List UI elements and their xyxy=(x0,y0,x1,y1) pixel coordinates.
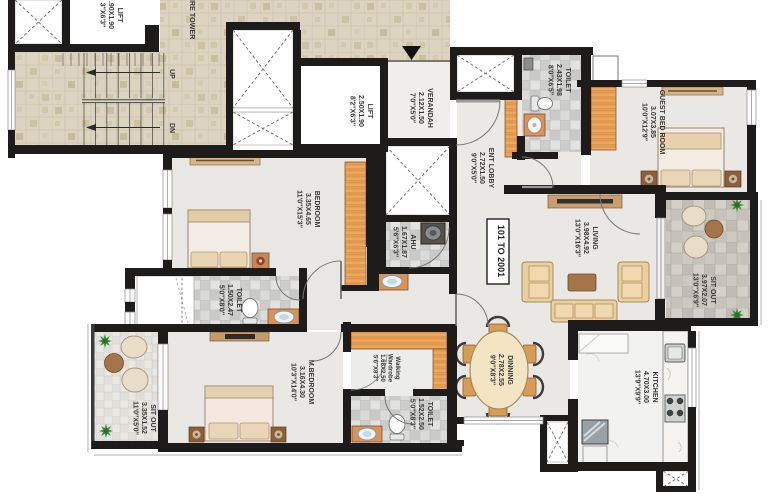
svg-text:2.78X2.55: 2.78X2.55 xyxy=(497,354,504,386)
svg-text:5'0″X8'0″: 5'0″X8'0″ xyxy=(217,285,224,316)
svg-text:5'0″X8'3″: 5'0″X8'3″ xyxy=(408,399,415,430)
svg-text:2.43X1.98: 2.43X1.98 xyxy=(555,64,562,96)
svg-text:13'0″X16'3″: 13'0″X16'3″ xyxy=(573,219,580,258)
svg-text:1.68X2.50: 1.68X2.50 xyxy=(379,354,386,382)
svg-text:3.35X4.65: 3.35X4.65 xyxy=(304,193,311,225)
svg-text:5'6″X6'3″: 5'6″X6'3″ xyxy=(391,227,398,258)
svg-text:3.97X2.07: 3.97X2.07 xyxy=(700,274,707,306)
svg-text:7'0″X5'0″: 7'0″X5'0″ xyxy=(408,93,415,124)
svg-text:3″X6'3″: 3″X6'3″ xyxy=(98,3,105,28)
svg-text:LIVING: LIVING xyxy=(591,226,598,250)
svg-text:11'0″X15'3″: 11'0″X15'3″ xyxy=(295,190,302,228)
svg-text:BEDROOM: BEDROOM xyxy=(313,191,320,228)
svg-text:Wardrobe: Wardrobe xyxy=(387,354,394,383)
svg-text:3.16X4.30: 3.16X4.30 xyxy=(298,366,305,398)
svg-text:5'6″X8'3″: 5'6″X8'3″ xyxy=(372,355,379,381)
svg-text:DN: DN xyxy=(168,123,175,133)
svg-text:11'0″X5'0″: 11'0″X5'0″ xyxy=(131,401,138,435)
svg-text:GUEST BED ROOM: GUEST BED ROOM xyxy=(658,90,665,155)
svg-text:LIFT: LIFT xyxy=(116,8,123,23)
svg-text:9'0″X5'0″: 9'0″X5'0″ xyxy=(469,153,476,184)
svg-text:1.50X2.47: 1.50X2.47 xyxy=(226,284,233,316)
svg-text:TOILET: TOILET xyxy=(235,288,242,313)
svg-text:1.52X2.50: 1.52X2.50 xyxy=(417,398,424,430)
svg-text:KITCHEN: KITCHEN xyxy=(651,371,658,402)
svg-text:DINNING: DINNING xyxy=(506,355,513,385)
svg-text:Walking: Walking xyxy=(394,356,401,379)
svg-text:2.72X1.50: 2.72X1.50 xyxy=(478,152,485,184)
svg-text:TOILET: TOILET xyxy=(564,68,571,93)
svg-text:3.07X3.85: 3.07X3.85 xyxy=(649,106,656,138)
svg-text:AHU: AHU xyxy=(409,234,416,249)
svg-text:8'0″X6'5″: 8'0″X6'5″ xyxy=(546,65,553,96)
svg-text:9'0″X8'3″: 9'0″X8'3″ xyxy=(488,355,495,386)
svg-text:UP: UP xyxy=(168,69,175,79)
svg-text:M.BEDROOM: M.BEDROOM xyxy=(307,360,314,405)
svg-text:SIT OUT: SIT OUT xyxy=(709,276,716,304)
svg-text:10'3″X14'0″: 10'3″X14'0″ xyxy=(289,363,296,402)
svg-text:8'2″X6'3″: 8'2″X6'3″ xyxy=(348,96,355,127)
svg-text:1.67X1.87: 1.67X1.87 xyxy=(400,226,407,258)
svg-text:101 TO 2001: 101 TO 2001 xyxy=(496,225,506,277)
svg-text:2.12X1.50: 2.12X1.50 xyxy=(417,92,424,124)
svg-text:10'0″X12'9″: 10'0″X12'9″ xyxy=(640,103,647,142)
svg-text:.90X1.90: .90X1.90 xyxy=(107,1,114,29)
svg-text:3.98X4.92: 3.98X4.92 xyxy=(582,222,589,254)
svg-text:FIRE TOWER: FIRE TOWER xyxy=(188,0,197,40)
svg-text:VERANDAH: VERANDAH xyxy=(426,88,433,128)
svg-text:3.35X1.52: 3.35X1.52 xyxy=(140,402,147,434)
svg-text:LIFT: LIFT xyxy=(366,104,373,119)
svg-text:13'9″X9'9″: 13'9″X9'9″ xyxy=(633,370,640,405)
svg-text:2.50X1.90: 2.50X1.90 xyxy=(357,95,364,127)
svg-text:SIT OUT: SIT OUT xyxy=(149,404,156,432)
svg-text:TOILET: TOILET xyxy=(426,402,433,427)
svg-text:ENT LOBBY: ENT LOBBY xyxy=(487,148,494,189)
svg-text:13'0″X6'9″: 13'0″X6'9″ xyxy=(691,273,698,308)
svg-text:4.70X3.00: 4.70X3.00 xyxy=(642,371,649,403)
